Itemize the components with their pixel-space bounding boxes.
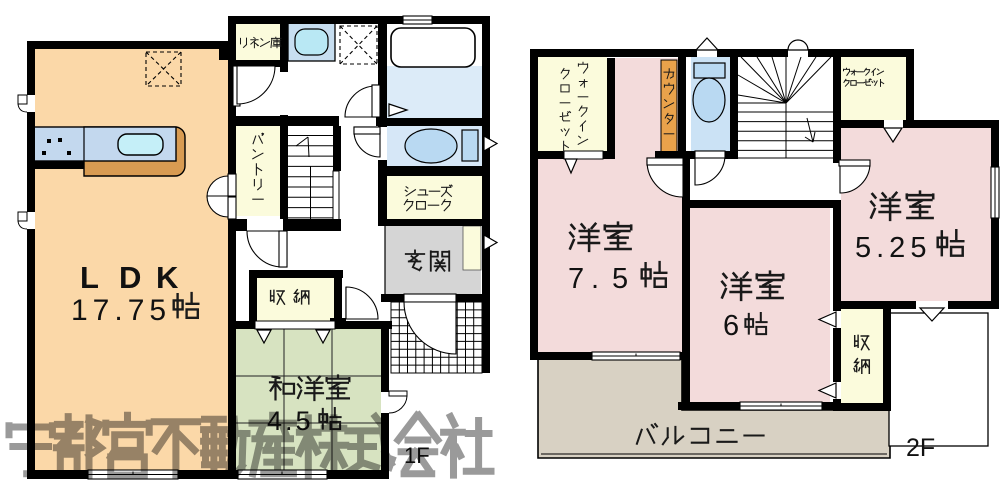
svg-text:7: 7: [568, 263, 584, 295]
svg-text:D: D: [119, 260, 141, 295]
svg-text:6: 6: [723, 310, 739, 342]
svg-text:L: L: [80, 260, 99, 295]
svg-text:17.75: 17.75: [71, 294, 171, 327]
svg-text:2F: 2F: [906, 434, 935, 462]
svg-text:.: .: [591, 263, 599, 295]
svg-text:K: K: [156, 260, 179, 295]
svg-text:5.25: 5.25: [855, 232, 931, 264]
svg-text:5: 5: [612, 263, 628, 295]
